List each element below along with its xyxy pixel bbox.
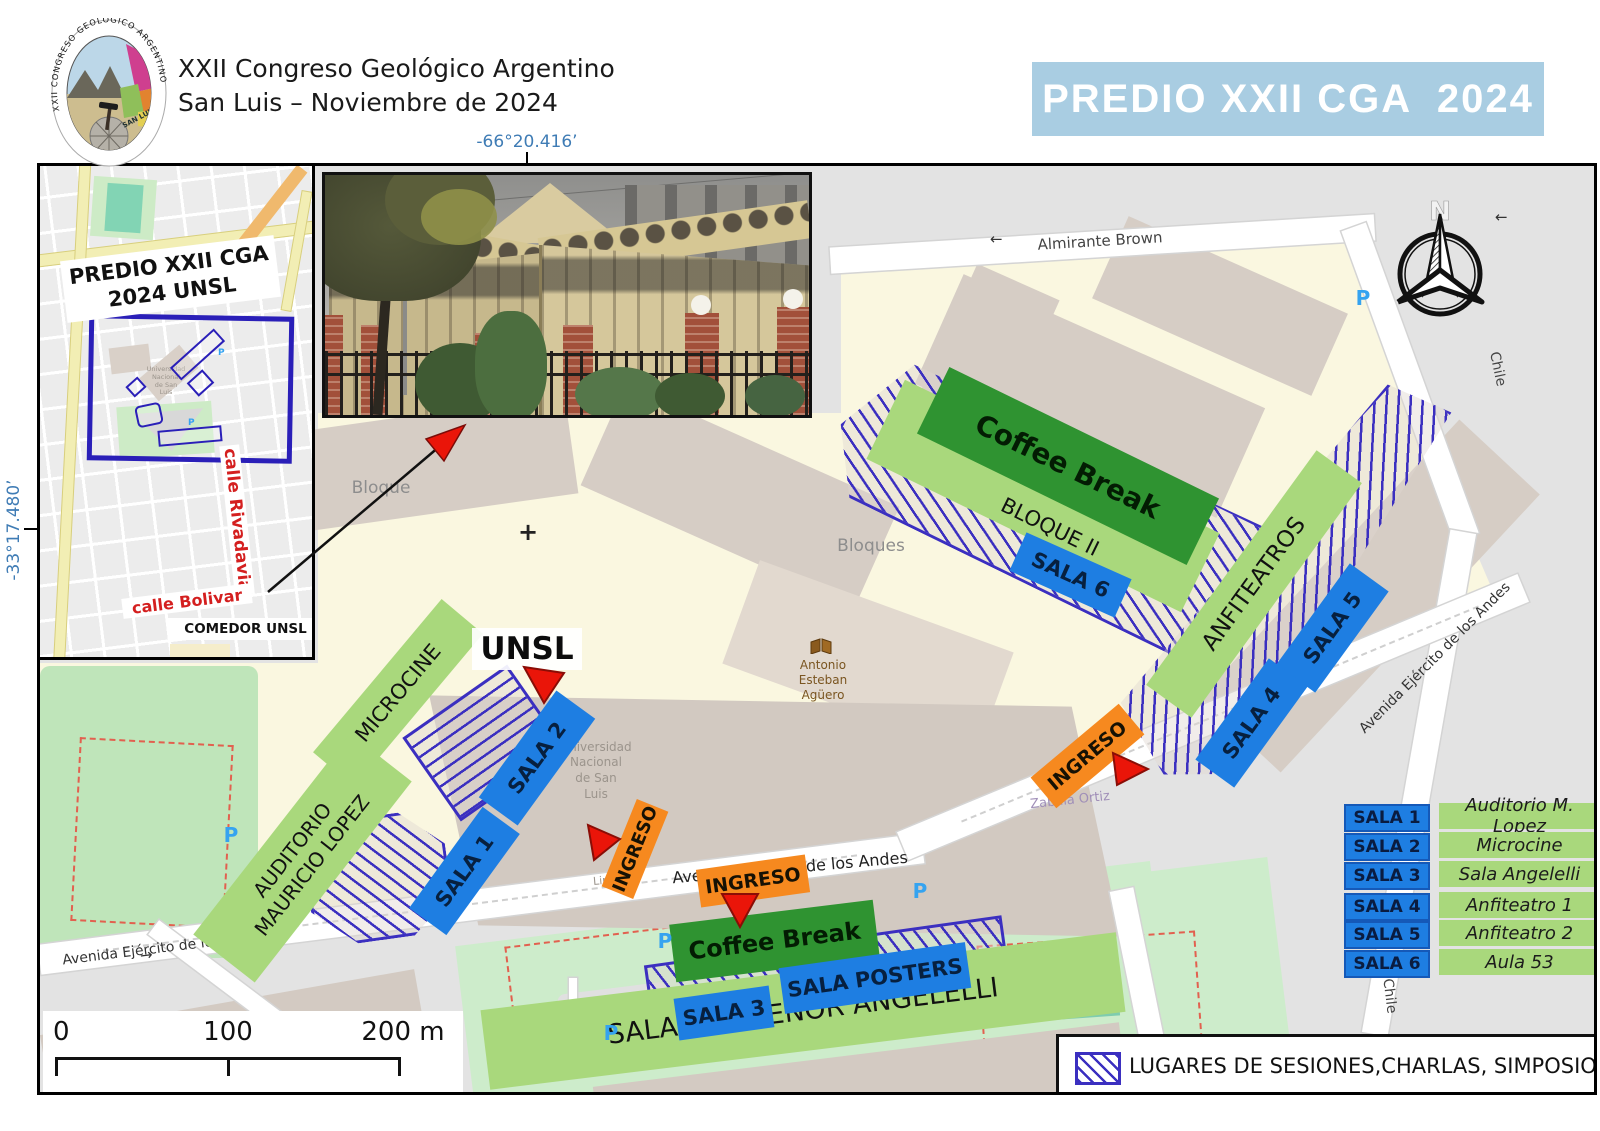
predio-banner-text: PREDIO XXII CGA 2024 [1042, 77, 1534, 122]
photo-globe-lamp [691, 295, 711, 315]
north-arrow-icon: N [1380, 196, 1500, 326]
inset-road [282, 191, 312, 311]
sala-3-label: SALA 3 [681, 995, 766, 1030]
legend-sala-4: SALA 4 [1344, 893, 1430, 921]
legend-sala-2-label: SALA 2 [1353, 837, 1420, 857]
latitude-tick [24, 528, 38, 530]
legend-sala-2: SALA 2 [1344, 833, 1430, 861]
label-bloque: Bloque [341, 478, 421, 498]
library-book-icon [810, 638, 832, 654]
longitude-tick [526, 152, 528, 166]
parking-icon: P [224, 823, 239, 847]
legend-name-6: Aula 53 [1439, 949, 1597, 975]
photo-fence-rail [325, 353, 809, 356]
inset-boundary [87, 313, 295, 464]
legend-name-2-label: Microcine [1476, 835, 1562, 856]
legend-name-3: Sala Angelelli [1439, 861, 1597, 887]
parking-icon: P [1356, 286, 1371, 310]
photo-bush [745, 375, 805, 417]
legend-name-1-label: Auditorio M. Lopez [1439, 795, 1597, 837]
inset-calle-bolivar: calle Bolivar [121, 583, 252, 619]
label-aguero: Antonio Esteban Agüero [778, 656, 868, 704]
entrance-marker-icon [1108, 748, 1152, 788]
legend-name-2: Microcine [1439, 832, 1597, 858]
session-hatch-swatch [1075, 1052, 1121, 1085]
legend-sala-3: SALA 3 [1344, 862, 1430, 890]
street-arrow-icon: → [139, 945, 154, 964]
latitude-label: -33°17.480’ [4, 470, 24, 590]
parking-icon: P [604, 1021, 619, 1045]
title-line-1: XXII Congreso Geológico Argentino [178, 52, 615, 86]
session-legend-label: LUGARES DE SESIONES,CHARLAS, SIMPOSIOS [1129, 1054, 1597, 1078]
scale-0: 0 [53, 1017, 70, 1047]
legend-sala-5: SALA 5 [1344, 921, 1430, 949]
unsl-text: UNSL [480, 631, 573, 667]
legend-sala-1-label: SALA 1 [1353, 808, 1420, 828]
inset-park-field [104, 183, 143, 233]
legend-sala-4-label: SALA 4 [1353, 897, 1420, 917]
inset-building [170, 644, 230, 660]
inset-road [53, 163, 90, 660]
legend-name-5-label: Anfiteatro 2 [1466, 923, 1573, 944]
legend-name-3-label: Sala Angelelli [1459, 864, 1581, 885]
legend-name-1: Auditorio M. Lopez [1439, 803, 1597, 829]
scale-bar-line [55, 1057, 401, 1076]
photo-bush [655, 373, 725, 418]
street-arrow-icon: ← [990, 230, 1003, 248]
legend-sala-5-label: SALA 5 [1353, 925, 1420, 945]
legend-sala-6: SALA 6 [1344, 950, 1430, 978]
photo-bush [475, 311, 547, 418]
scale-bar: 0 100 200 m [43, 1011, 463, 1092]
photo-globe-lamp [783, 289, 803, 309]
scale-200: 200 m [343, 1017, 463, 1047]
parking-icon: P [658, 929, 673, 953]
photo-fence-rail [325, 373, 809, 376]
campus-photo [322, 172, 812, 418]
legend-name-5: Anfiteatro 2 [1439, 920, 1597, 946]
coffee-break-label: Coffee Break [687, 917, 862, 966]
label-bloques: Bloques [831, 536, 911, 556]
calle-rivadavia-text: calle Rivadavia [220, 447, 255, 592]
street-label-chile: Chile [1486, 350, 1509, 388]
poster-canvas: Skate Park Almirante Brown Chile Chile A… [0, 0, 1600, 1131]
legend-name-6-label: Aula 53 [1485, 952, 1553, 973]
inset-parking-icon: P [188, 418, 195, 428]
legend-sala-6-label: SALA 6 [1353, 954, 1420, 974]
photo-tree-canopy [421, 189, 497, 245]
inset-parking-icon: P [218, 348, 225, 358]
inset-park [90, 176, 157, 240]
entrance-marker-icon [521, 664, 567, 706]
calle-bolivar-text: calle Bolivar [131, 585, 243, 617]
plus-marker: + [518, 518, 538, 546]
legend-sala-3-label: SALA 3 [1353, 866, 1420, 886]
parking-icon: P [913, 879, 928, 903]
entrance-marker-icon [718, 890, 762, 930]
photo-fence [325, 351, 809, 415]
legend-name-4: Anfiteatro 1 [1439, 892, 1597, 918]
comedor-text: COMEDOR UNSL [184, 621, 306, 637]
legend-sala-1: SALA 1 [1344, 804, 1430, 832]
poster-title: XXII Congreso Geológico Argentino San Lu… [178, 52, 615, 120]
inset-comedor: COMEDOR UNSL [168, 618, 315, 640]
photo-bush [575, 367, 665, 418]
congress-logo: SAN LUIS 2024 XXII CONGRESO GEOLÓGICO AR… [50, 18, 168, 168]
inset-calle-rivadavia: calle Rivadavia [219, 444, 255, 595]
title-line-2: San Luis – Noviembre de 2024 [178, 86, 615, 120]
inset-map: Universidad Nacional de San Luis PREDIO … [37, 163, 315, 660]
legend-name-4-label: Anfiteatro 1 [1466, 895, 1573, 916]
longitude-label: -66°20.416’ [452, 132, 602, 152]
scale-100: 100 [193, 1017, 263, 1047]
path-outline [70, 737, 233, 929]
session-legend: LUGARES DE SESIONES,CHARLAS, SIMPOSIOS [1056, 1034, 1597, 1095]
entrance-marker-icon [581, 823, 623, 863]
predio-banner: PREDIO XXII CGA 2024 [1032, 62, 1544, 136]
